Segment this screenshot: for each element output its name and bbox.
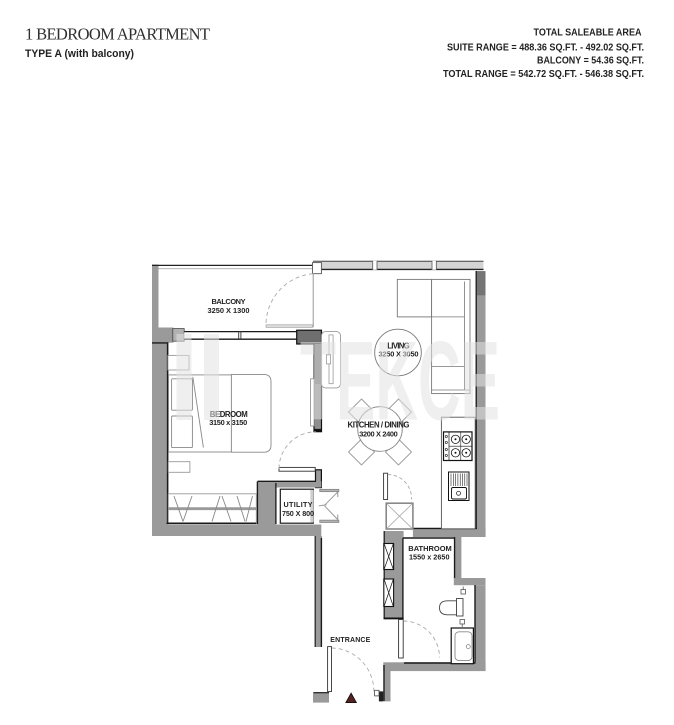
svg-text:TYPE A (with balcony): TYPE A (with balcony) bbox=[25, 48, 134, 60]
svg-text:3250 X 1300: 3250 X 1300 bbox=[208, 306, 250, 315]
svg-text:UTILITY: UTILITY bbox=[284, 500, 313, 509]
svg-text:SUITE RANGE = 488.36 SQ.FT. -: SUITE RANGE = 488.36 SQ.FT. - 492.02 SQ.… bbox=[447, 43, 644, 54]
svg-text:TEKCE: TEKCE bbox=[300, 319, 500, 444]
svg-text:BALCONY = 54.36 SQ.FT.: BALCONY = 54.36 SQ.FT. bbox=[537, 55, 644, 66]
svg-text:TOTAL SALEABLE AREA: TOTAL SALEABLE AREA bbox=[534, 27, 642, 39]
svg-text:1 BEDROOM APARTMENT: 1 BEDROOM APARTMENT bbox=[25, 25, 210, 44]
svg-text:BALCONY: BALCONY bbox=[212, 297, 246, 306]
svg-text:750 X 800: 750 X 800 bbox=[282, 509, 314, 518]
svg-text:1550 x 2650: 1550 x 2650 bbox=[409, 553, 450, 562]
svg-text:TOTAL RANGE = 542.72 SQ.FT. -: TOTAL RANGE = 542.72 SQ.FT. - 546.38 SQ.… bbox=[443, 69, 644, 80]
svg-text:ENTRANCE: ENTRANCE bbox=[330, 637, 370, 644]
